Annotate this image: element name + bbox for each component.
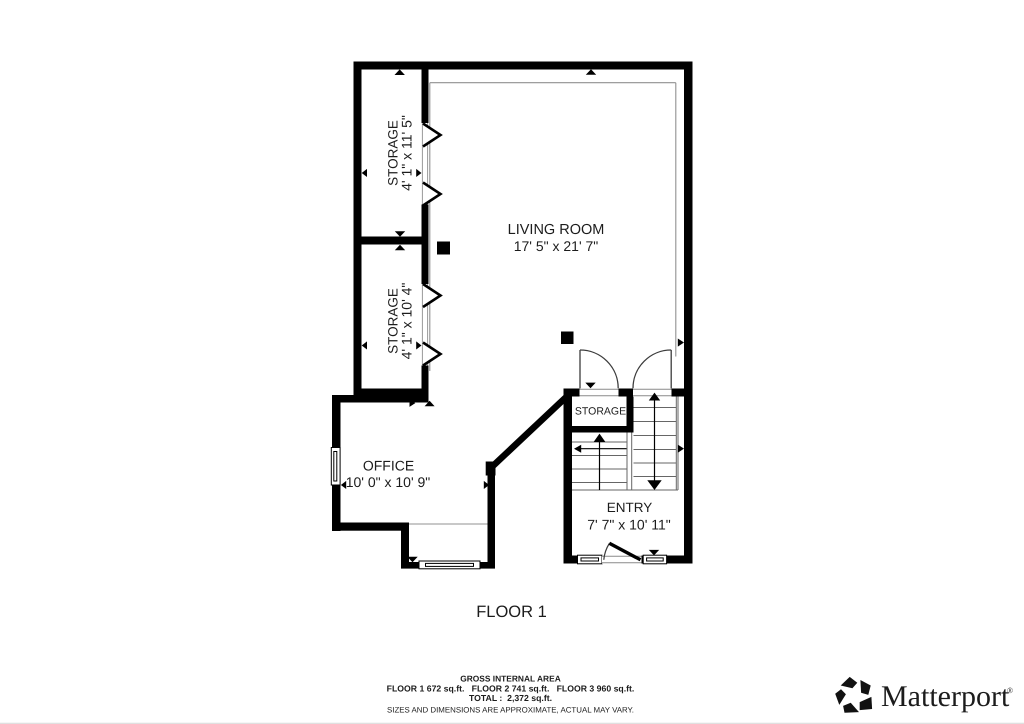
svg-text:ENTRY: ENTRY — [607, 500, 653, 515]
svg-text:OFFICE: OFFICE — [363, 458, 414, 474]
svg-text:Matterport: Matterport — [881, 680, 1010, 713]
svg-text:TOTAL : 2,372 sq.ft.: TOTAL : 2,372 sq.ft. — [469, 693, 552, 703]
svg-text:LIVING ROOM: LIVING ROOM — [508, 222, 605, 238]
svg-text:10' 0" x 10' 9": 10' 0" x 10' 9" — [346, 474, 431, 490]
svg-text:7' 7" x 10' 11": 7' 7" x 10' 11" — [587, 517, 671, 533]
svg-text:STORAGE: STORAGE — [575, 406, 626, 418]
svg-text:®: ® — [1007, 686, 1013, 695]
svg-text:FLOOR 1: FLOOR 1 — [476, 603, 547, 621]
svg-text:GROSS INTERNAL AREA: GROSS INTERNAL AREA — [460, 674, 561, 684]
svg-text:17' 5" x 21' 7": 17' 5" x 21' 7" — [514, 238, 599, 254]
svg-text:4' 1" x 11' 5": 4' 1" x 11' 5" — [399, 115, 415, 191]
svg-text:SIZES AND DIMENSIONS ARE APPRO: SIZES AND DIMENSIONS ARE APPROXIMATE, AC… — [387, 705, 634, 714]
svg-text:4' 1" x 10' 4": 4' 1" x 10' 4" — [399, 283, 415, 360]
svg-text:FLOOR 1 672 sq.ft. FLOOR 2 7: FLOOR 1 672 sq.ft. FLOOR 2 741 sq.ft. FL… — [387, 683, 635, 693]
